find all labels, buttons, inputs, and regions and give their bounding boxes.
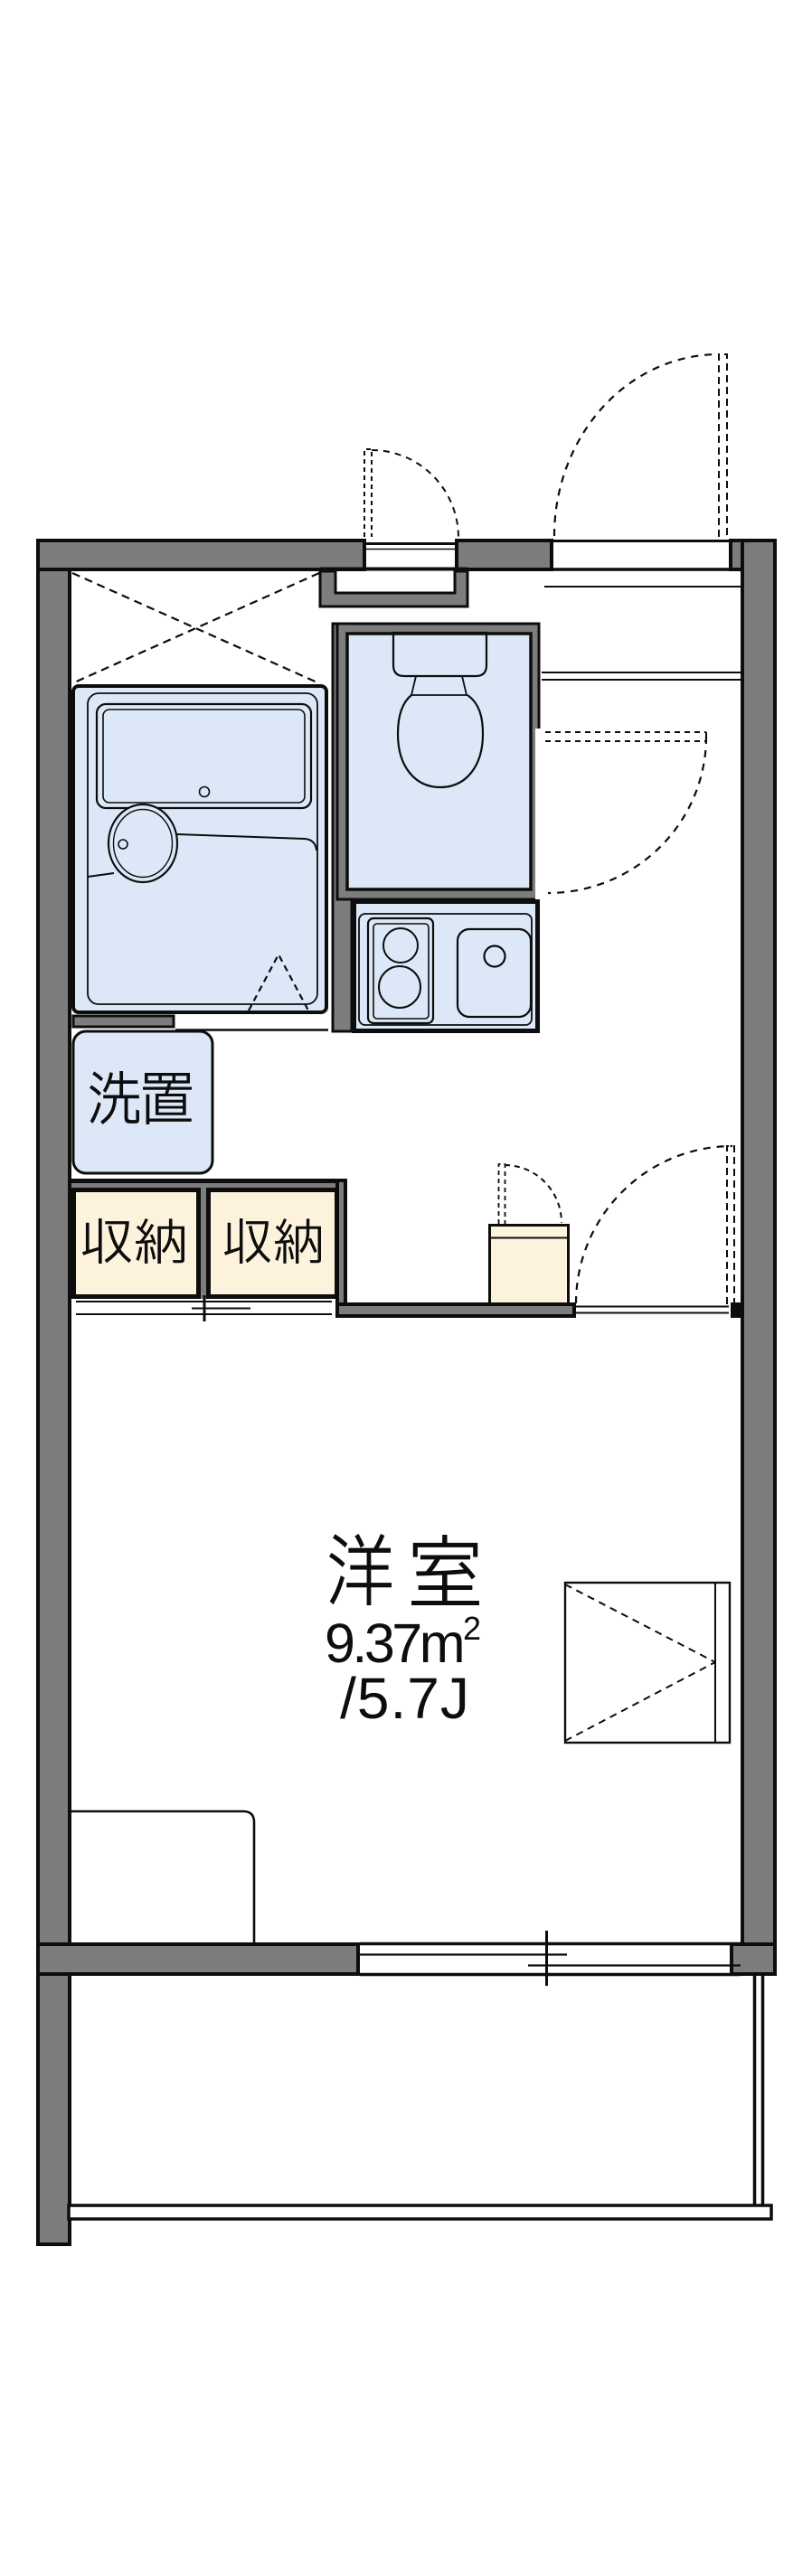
svg-text:/5.7J: /5.7J bbox=[340, 1666, 470, 1731]
svg-text:2: 2 bbox=[463, 1610, 481, 1647]
svg-text:9.37m: 9.37m bbox=[325, 1612, 462, 1674]
